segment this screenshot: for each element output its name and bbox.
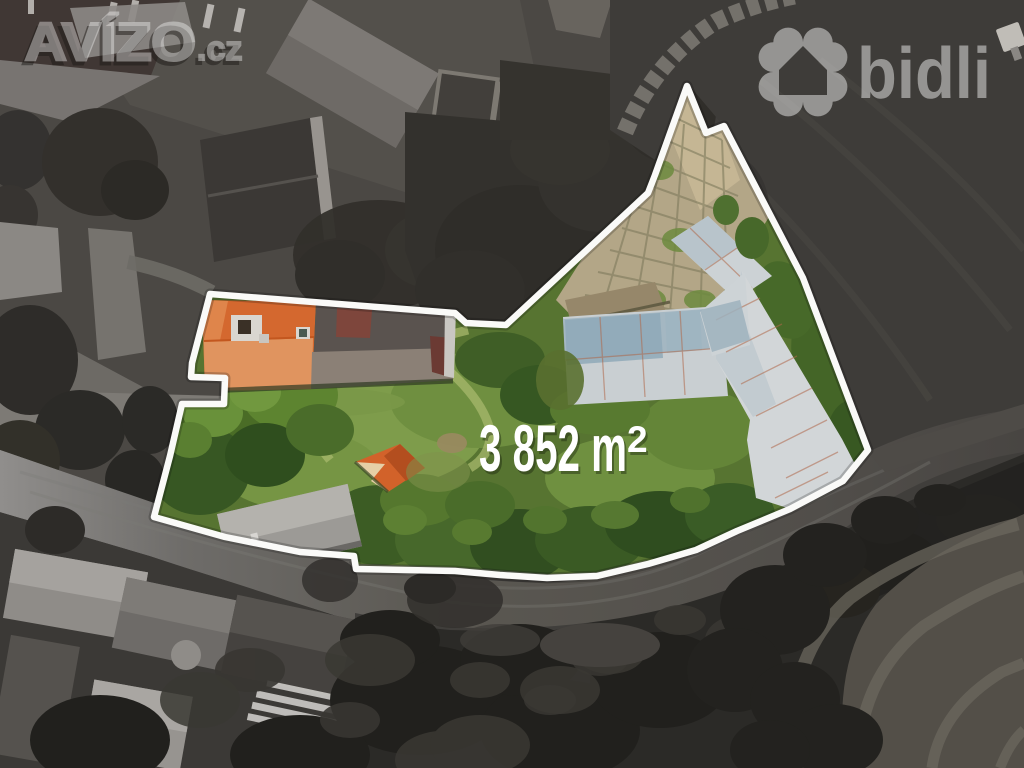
svg-text:.cz: .cz [197,30,242,68]
svg-text:3 852 m: 3 852 m [479,411,627,485]
svg-text:AVÍZO: AVÍZO [25,12,196,72]
svg-text:bidli: bidli [857,34,991,114]
svg-text:2: 2 [627,419,648,460]
